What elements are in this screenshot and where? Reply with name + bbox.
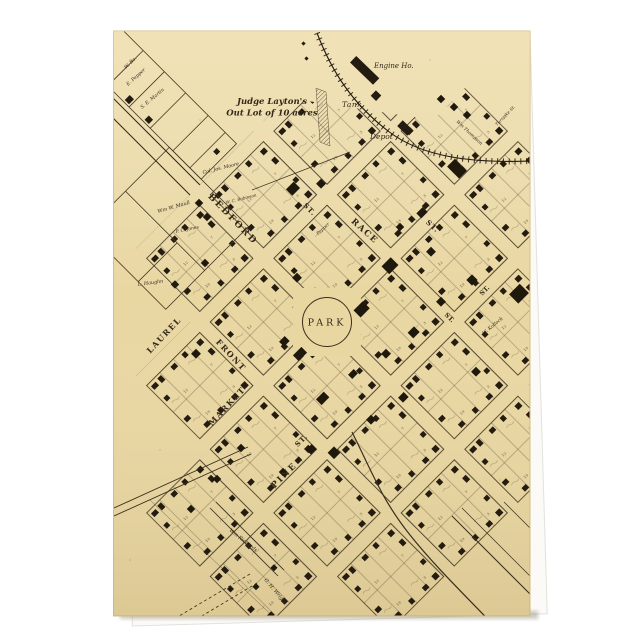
engine-house-label: Engine Ho.: [373, 62, 414, 70]
vintage-town-map-card: 12 7 19 3: [0, 0, 644, 644]
greeting-card-photo: 12 7 19 3: [0, 0, 644, 644]
depot-label: Depot: [369, 132, 394, 141]
outlot-label-line2: Out Lot of 10 acres: [226, 109, 318, 119]
town-plat-map: PARK Judge Layton's Out Lot of 10 acres …: [0, 0, 644, 644]
park-label: PARK: [308, 318, 347, 329]
outlot-label-line1: Judge Layton's: [235, 97, 307, 107]
tank-label: Tank: [342, 100, 362, 109]
